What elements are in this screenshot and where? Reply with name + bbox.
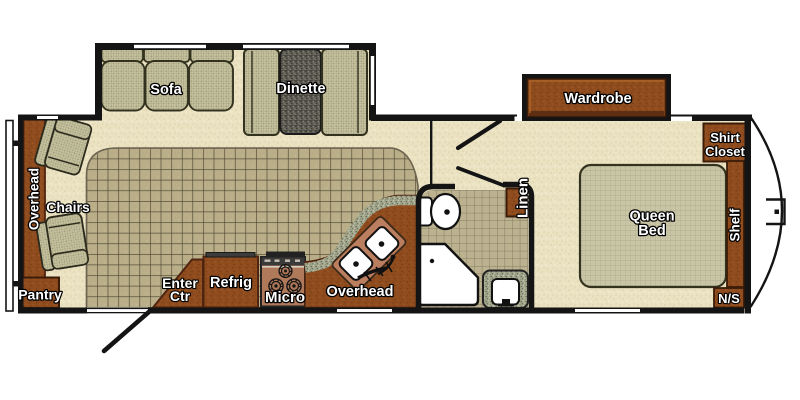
svg-text:Overhead: Overhead — [327, 284, 394, 300]
svg-text:Micro: Micro — [265, 289, 305, 306]
svg-text:Refrig: Refrig — [210, 275, 252, 291]
svg-text:Ctr: Ctr — [170, 288, 191, 304]
svg-text:Dinette: Dinette — [276, 81, 325, 97]
svg-text:Overhead: Overhead — [27, 168, 42, 230]
svg-text:Closet: Closet — [705, 144, 745, 159]
svg-text:Bed: Bed — [638, 223, 665, 239]
svg-text:Sofa: Sofa — [150, 82, 182, 98]
svg-text:Shirt: Shirt — [710, 130, 740, 145]
svg-text:N/S: N/S — [718, 291, 740, 306]
svg-text:Wardrobe: Wardrobe — [564, 91, 631, 107]
svg-text:Shelf: Shelf — [728, 208, 743, 242]
svg-text:Linen: Linen — [515, 178, 532, 218]
svg-text:Pantry: Pantry — [18, 287, 62, 303]
svg-text:Chairs: Chairs — [46, 199, 90, 215]
